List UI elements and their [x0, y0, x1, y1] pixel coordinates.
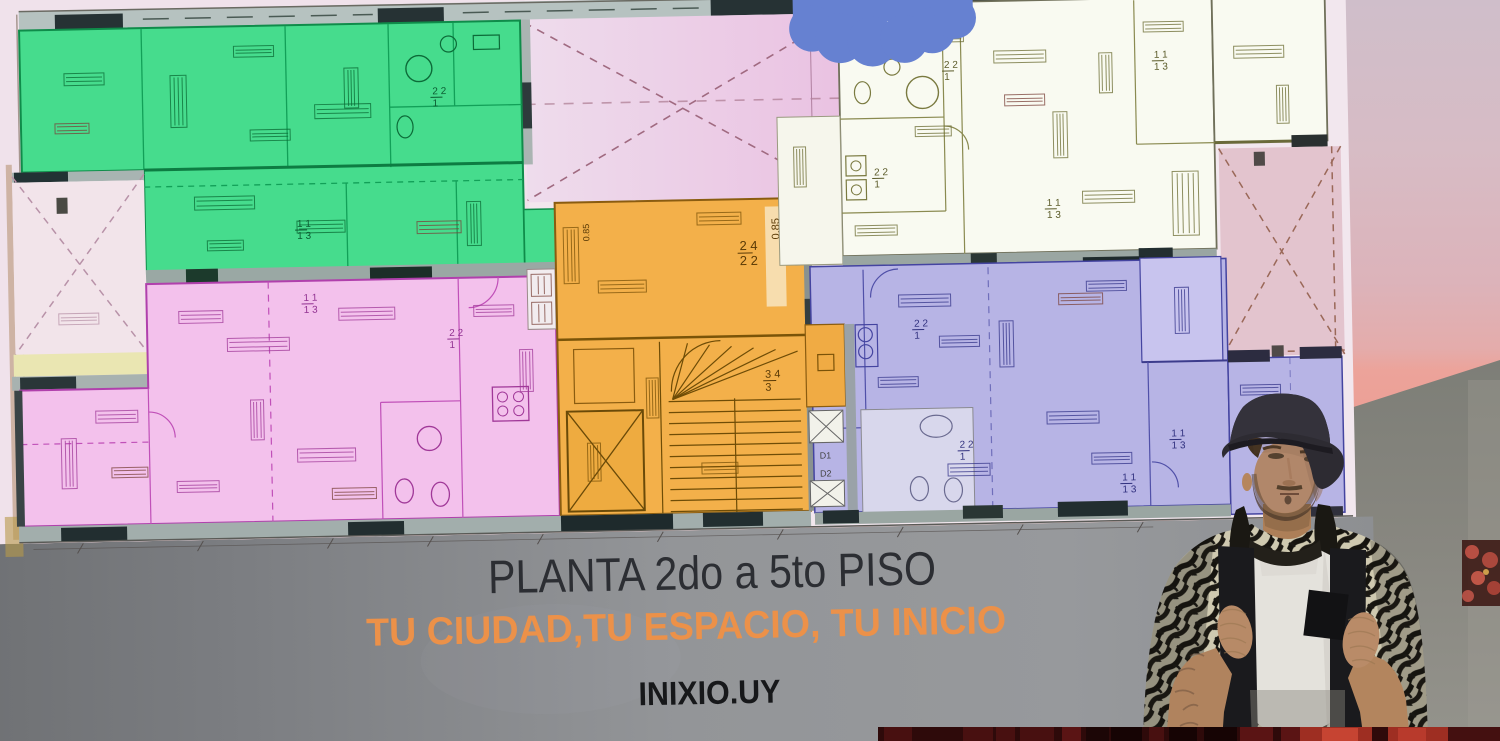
- svg-text:2 2: 2 2: [874, 167, 889, 178]
- svg-text:1: 1: [432, 98, 438, 109]
- svg-text:INIXIO.UY: INIXIO.UY: [638, 672, 781, 712]
- svg-text:1: 1: [874, 179, 880, 190]
- svg-text:2 2: 2 2: [944, 60, 959, 71]
- svg-text:D2: D2: [820, 468, 832, 478]
- svg-text:D1: D1: [820, 450, 832, 460]
- svg-text:1 3: 1 3: [1122, 484, 1137, 495]
- svg-text:1 1: 1 1: [297, 219, 312, 230]
- svg-text:1: 1: [449, 340, 455, 351]
- svg-text:2 2: 2 2: [432, 86, 447, 97]
- svg-text:1 3: 1 3: [1172, 440, 1187, 451]
- svg-text:1: 1: [944, 72, 950, 83]
- svg-text:PLANTA 2do a 5to PISO: PLANTA 2do a 5to PISO: [488, 541, 937, 603]
- svg-text:1 1: 1 1: [1122, 472, 1137, 483]
- svg-text:2 2: 2 2: [740, 253, 758, 268]
- svg-text:1 1: 1 1: [1154, 50, 1169, 61]
- svg-text:2 4: 2 4: [739, 238, 757, 253]
- svg-text:1 1: 1 1: [1171, 428, 1186, 439]
- svg-text:1: 1: [960, 452, 966, 463]
- svg-text:3 4: 3 4: [765, 368, 781, 380]
- svg-text:1 3: 1 3: [304, 305, 319, 316]
- svg-text:1 3: 1 3: [297, 231, 312, 242]
- svg-text:2 2: 2 2: [959, 440, 974, 451]
- svg-text:0.85: 0.85: [581, 224, 591, 242]
- svg-text:1 3: 1 3: [1154, 62, 1169, 73]
- svg-text:2 2: 2 2: [914, 318, 929, 329]
- svg-text:1 1: 1 1: [1047, 198, 1062, 209]
- svg-text:1 3: 1 3: [1047, 210, 1062, 221]
- svg-text:1: 1: [914, 331, 920, 342]
- svg-text:3: 3: [765, 382, 771, 394]
- svg-text:1 1: 1 1: [303, 293, 318, 304]
- svg-text:2 2: 2 2: [449, 328, 464, 339]
